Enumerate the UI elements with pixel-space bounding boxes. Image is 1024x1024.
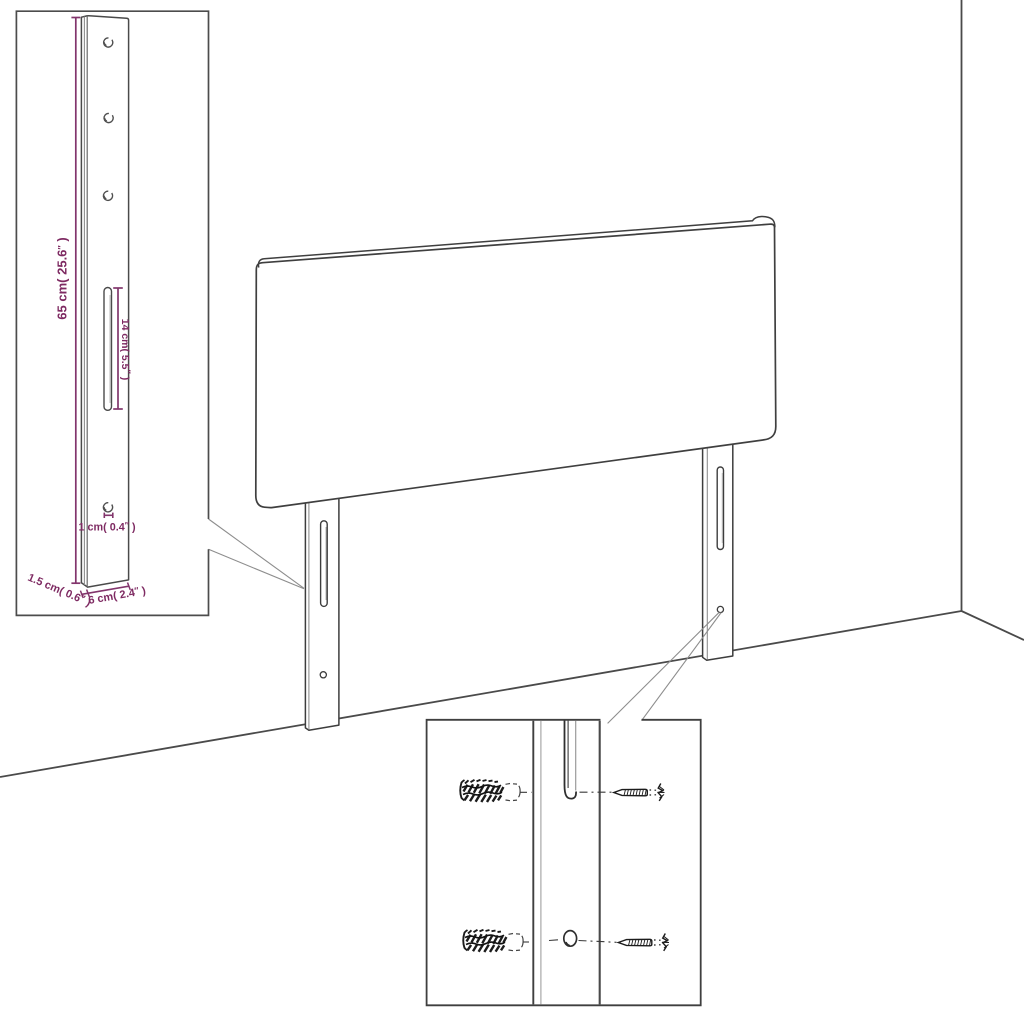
svg-text:65 cm( 25.6″ ): 65 cm( 25.6″ ) — [55, 237, 70, 319]
